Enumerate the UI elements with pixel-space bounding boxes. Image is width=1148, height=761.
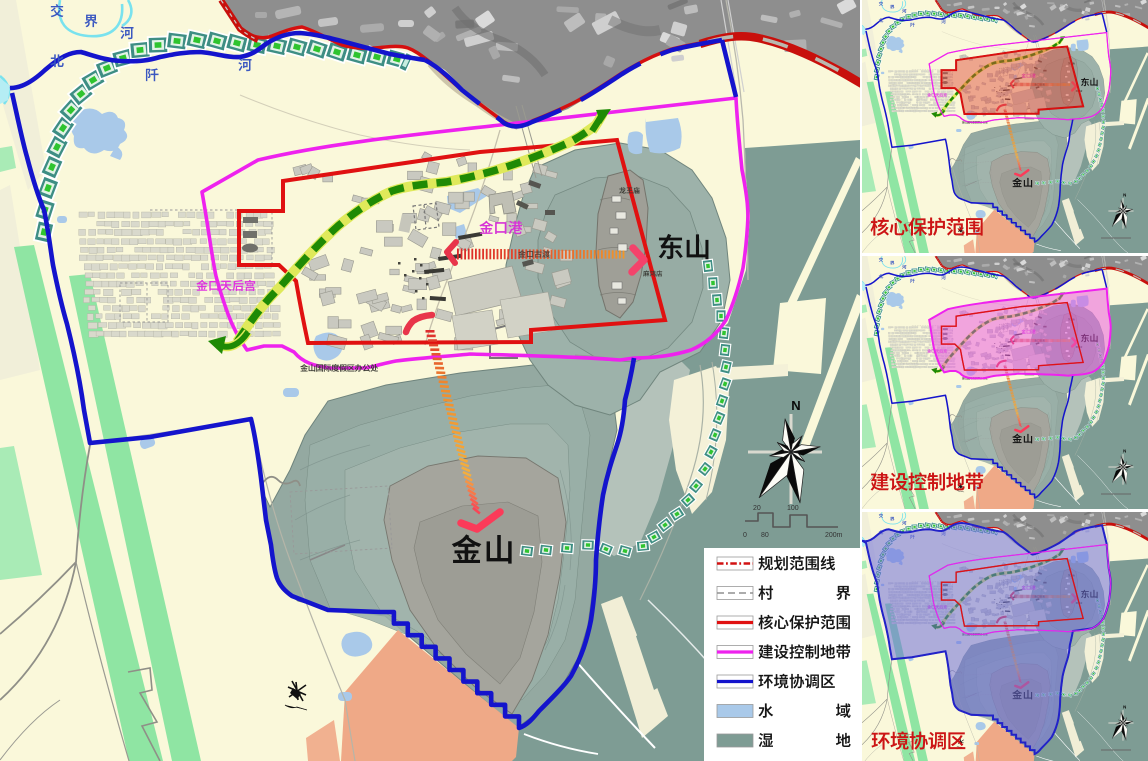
svg-text:200m: 200m	[825, 532, 843, 539]
svg-text:80: 80	[761, 532, 769, 539]
svg-text:0: 0	[743, 532, 747, 539]
svg-text:20: 20	[753, 505, 761, 512]
svg-text:100: 100	[787, 505, 799, 512]
